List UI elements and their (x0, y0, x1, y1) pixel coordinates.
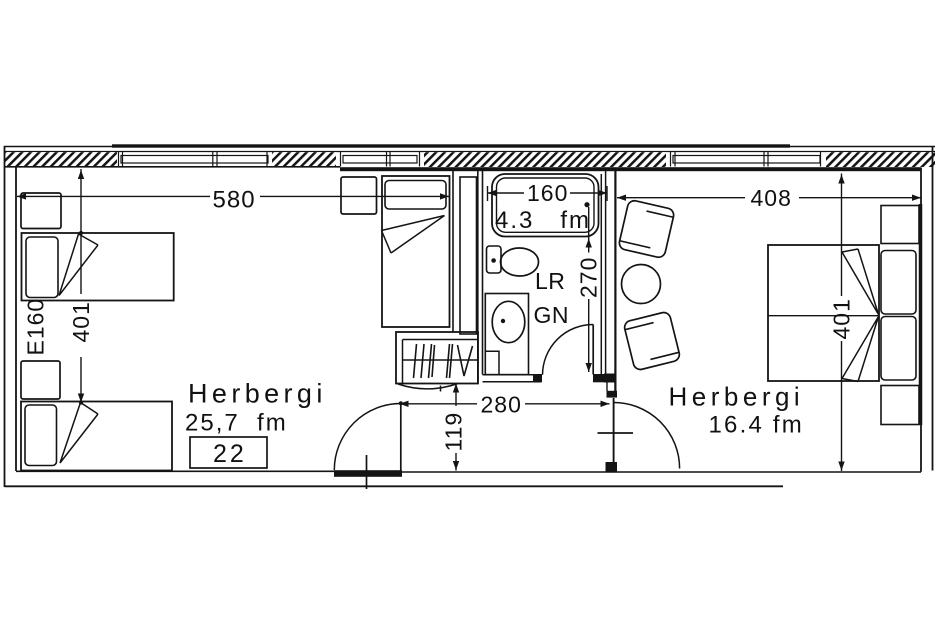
svg-text:16.4 fm: 16.4 fm (709, 412, 804, 439)
svg-text:4.3 fm: 4.3 fm (495, 207, 591, 234)
svg-text:LR: LR (535, 268, 565, 294)
svg-text:119: 119 (441, 412, 467, 452)
svg-text:GN: GN (534, 302, 570, 328)
svg-text:270: 270 (576, 257, 602, 298)
svg-text:408: 408 (751, 185, 792, 211)
svg-text:401: 401 (829, 298, 855, 339)
svg-text:580: 580 (213, 186, 256, 213)
svg-text:Herbergi: Herbergi (669, 382, 805, 412)
svg-text:401: 401 (68, 301, 94, 342)
svg-text:280: 280 (481, 392, 522, 418)
svg-text:160: 160 (527, 180, 568, 206)
svg-text:25,7 fm: 25,7 fm (185, 410, 288, 437)
svg-text:E160: E160 (23, 298, 49, 356)
svg-text:Herbergi: Herbergi (188, 378, 327, 408)
svg-text:22: 22 (213, 440, 247, 468)
